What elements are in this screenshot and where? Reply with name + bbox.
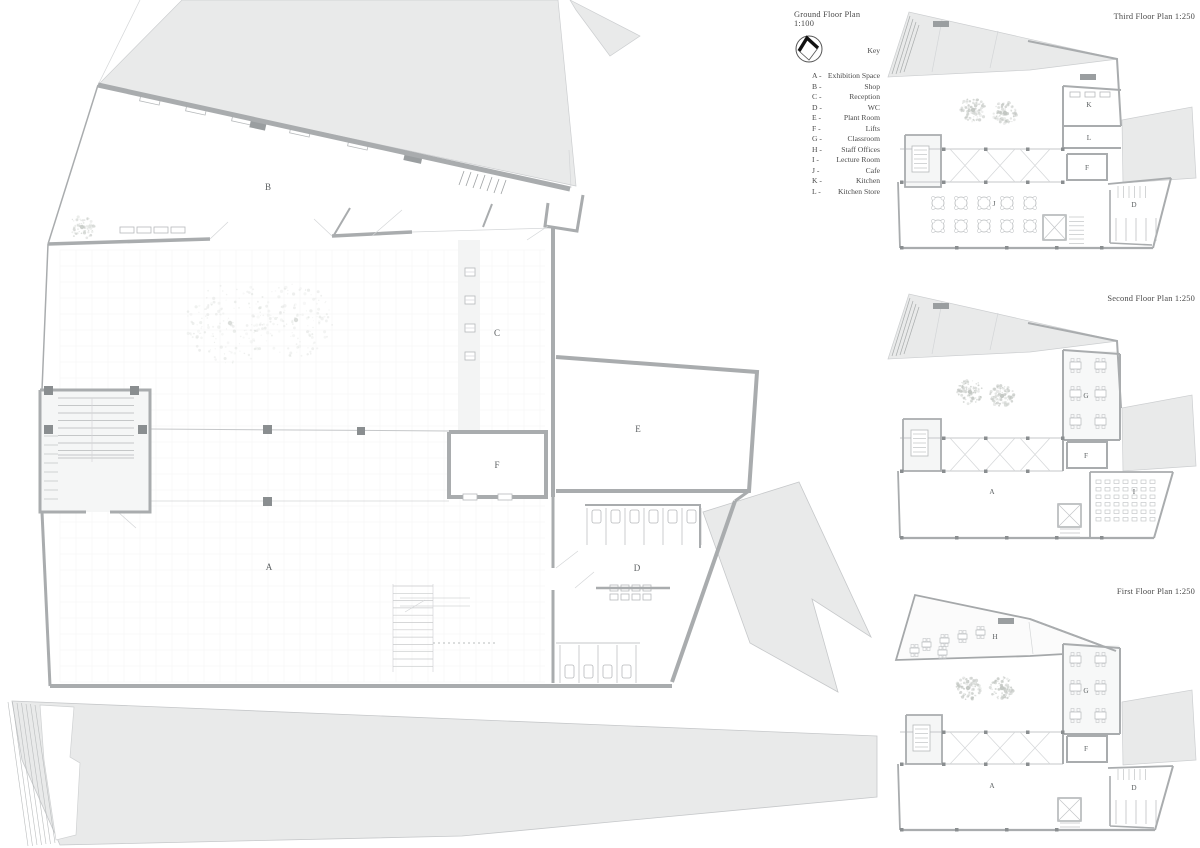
room-label-plant-room: E	[635, 424, 641, 434]
key-entry: L -Kitchen Store	[794, 187, 880, 198]
room-label-exhibition: A	[989, 782, 995, 790]
tree	[956, 379, 982, 405]
room-label-shop: B	[265, 182, 271, 192]
tree	[989, 384, 1015, 407]
key-panel: Ground Floor Plan 1:100 Key A -Exhibitio…	[794, 10, 880, 197]
cafe-tables	[931, 196, 1036, 232]
tree	[187, 285, 275, 364]
adjacent-roof	[1122, 690, 1196, 765]
second-floor-plan-drawing: G F A I	[880, 290, 1200, 575]
tree	[989, 676, 1015, 700]
key-entry: B -Shop	[794, 82, 880, 93]
key-entry: F -Lifts	[794, 124, 880, 135]
adjacent-roof	[1122, 395, 1196, 471]
tree	[959, 98, 985, 122]
first-floor-plan-drawing: H G F A D	[880, 578, 1200, 846]
key-entry: K -Kitchen	[794, 176, 880, 187]
room-label-staff-offices: H	[992, 633, 997, 641]
adjacent-roof	[1122, 107, 1196, 183]
room-label-lifts: F	[494, 460, 499, 470]
key-entry: C -Reception	[794, 92, 880, 103]
ground-floor-plan-drawing: B C E F A D	[0, 0, 880, 848]
room-label-classroom: G	[1083, 392, 1088, 400]
room-label-exhibition: A	[989, 488, 995, 496]
key-entry: D -WC	[794, 103, 880, 114]
key-entry: J -Cafe	[794, 166, 880, 177]
kitchen-fixtures	[1070, 74, 1110, 97]
tree	[992, 101, 1017, 125]
room-label-exhibition: A	[266, 562, 273, 572]
key-entry: G -Classroom	[794, 134, 880, 145]
third-floor-plan-drawing: K L F D J	[880, 8, 1200, 270]
key-entry: I -Lecture Room	[794, 155, 880, 166]
room-label-kitchen-store: L	[1087, 134, 1091, 142]
ground-plan-title: Ground Floor Plan 1:100	[794, 10, 880, 28]
roof-wedge	[888, 12, 1118, 77]
tree	[956, 677, 982, 701]
room-label-lifts: F	[1085, 164, 1089, 172]
room-label-lifts: F	[1084, 452, 1088, 460]
north-arrow-icon	[794, 34, 824, 64]
room-label-wc: D	[1131, 201, 1136, 209]
room-label-classroom: G	[1083, 687, 1088, 695]
roof-wedge	[888, 294, 1118, 359]
lecture-seats	[1096, 480, 1155, 521]
key-entry: A -Exhibition Space	[794, 71, 880, 82]
room-label-wc: D	[1131, 784, 1136, 792]
key-entries: A -Exhibition Space B -Shop C -Reception…	[794, 71, 880, 197]
room-label-lifts: F	[1084, 745, 1088, 753]
stairwell-fill	[40, 390, 150, 512]
drawing-sheet: B C E F A D Ground Floor Plan 1:100 Key …	[0, 0, 1200, 848]
key-entry: H -Staff Offices	[794, 145, 880, 156]
key-entry: E -Plant Room	[794, 113, 880, 124]
key-heading: Key	[867, 46, 880, 55]
room-label-cafe: J	[993, 200, 996, 208]
tree	[71, 215, 95, 239]
room-label-wc: D	[634, 563, 641, 573]
room-label-kitchen: K	[1086, 101, 1092, 109]
gallery-lines	[150, 240, 480, 501]
room-label-reception: C	[494, 328, 500, 338]
